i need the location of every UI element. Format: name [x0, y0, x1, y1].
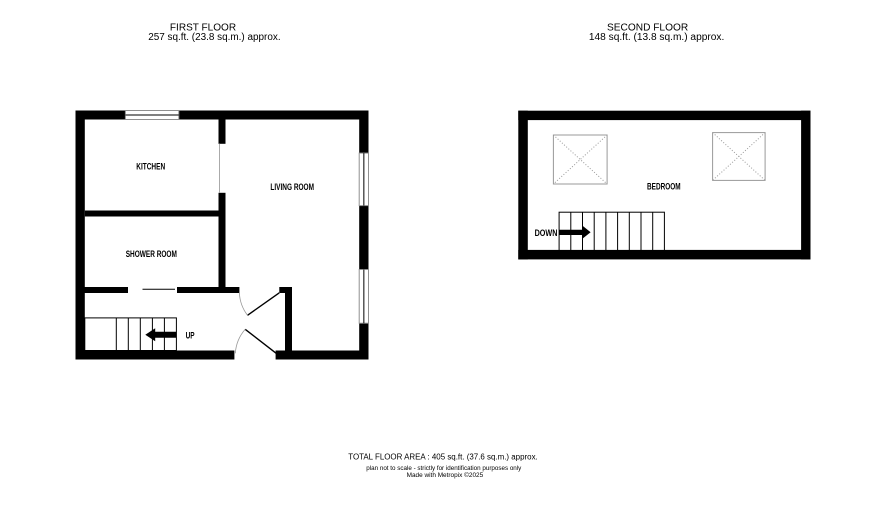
svg-text:148 sq.ft. (13.8 sq.m.) approx: 148 sq.ft. (13.8 sq.m.) approx. [589, 32, 724, 43]
svg-text:plan not to scale - strictly f: plan not to scale - strictly for identif… [366, 465, 522, 472]
svg-text:BEDROOM: BEDROOM [647, 181, 681, 191]
svg-text:SHOWER ROOM: SHOWER ROOM [126, 249, 177, 259]
svg-text:Made with Metropix ©2025: Made with Metropix ©2025 [407, 471, 484, 479]
svg-text:UP: UP [186, 331, 195, 341]
svg-text:257 sq.ft. (23.8 sq.m.) approx: 257 sq.ft. (23.8 sq.m.) approx. [148, 32, 280, 43]
svg-text:KITCHEN: KITCHEN [136, 162, 165, 172]
svg-text:DOWN: DOWN [535, 228, 558, 238]
svg-text:LIVING ROOM: LIVING ROOM [270, 182, 314, 192]
svg-text:TOTAL FLOOR AREA : 405 sq.ft.: TOTAL FLOOR AREA : 405 sq.ft. (37.6 sq.m… [348, 452, 538, 461]
